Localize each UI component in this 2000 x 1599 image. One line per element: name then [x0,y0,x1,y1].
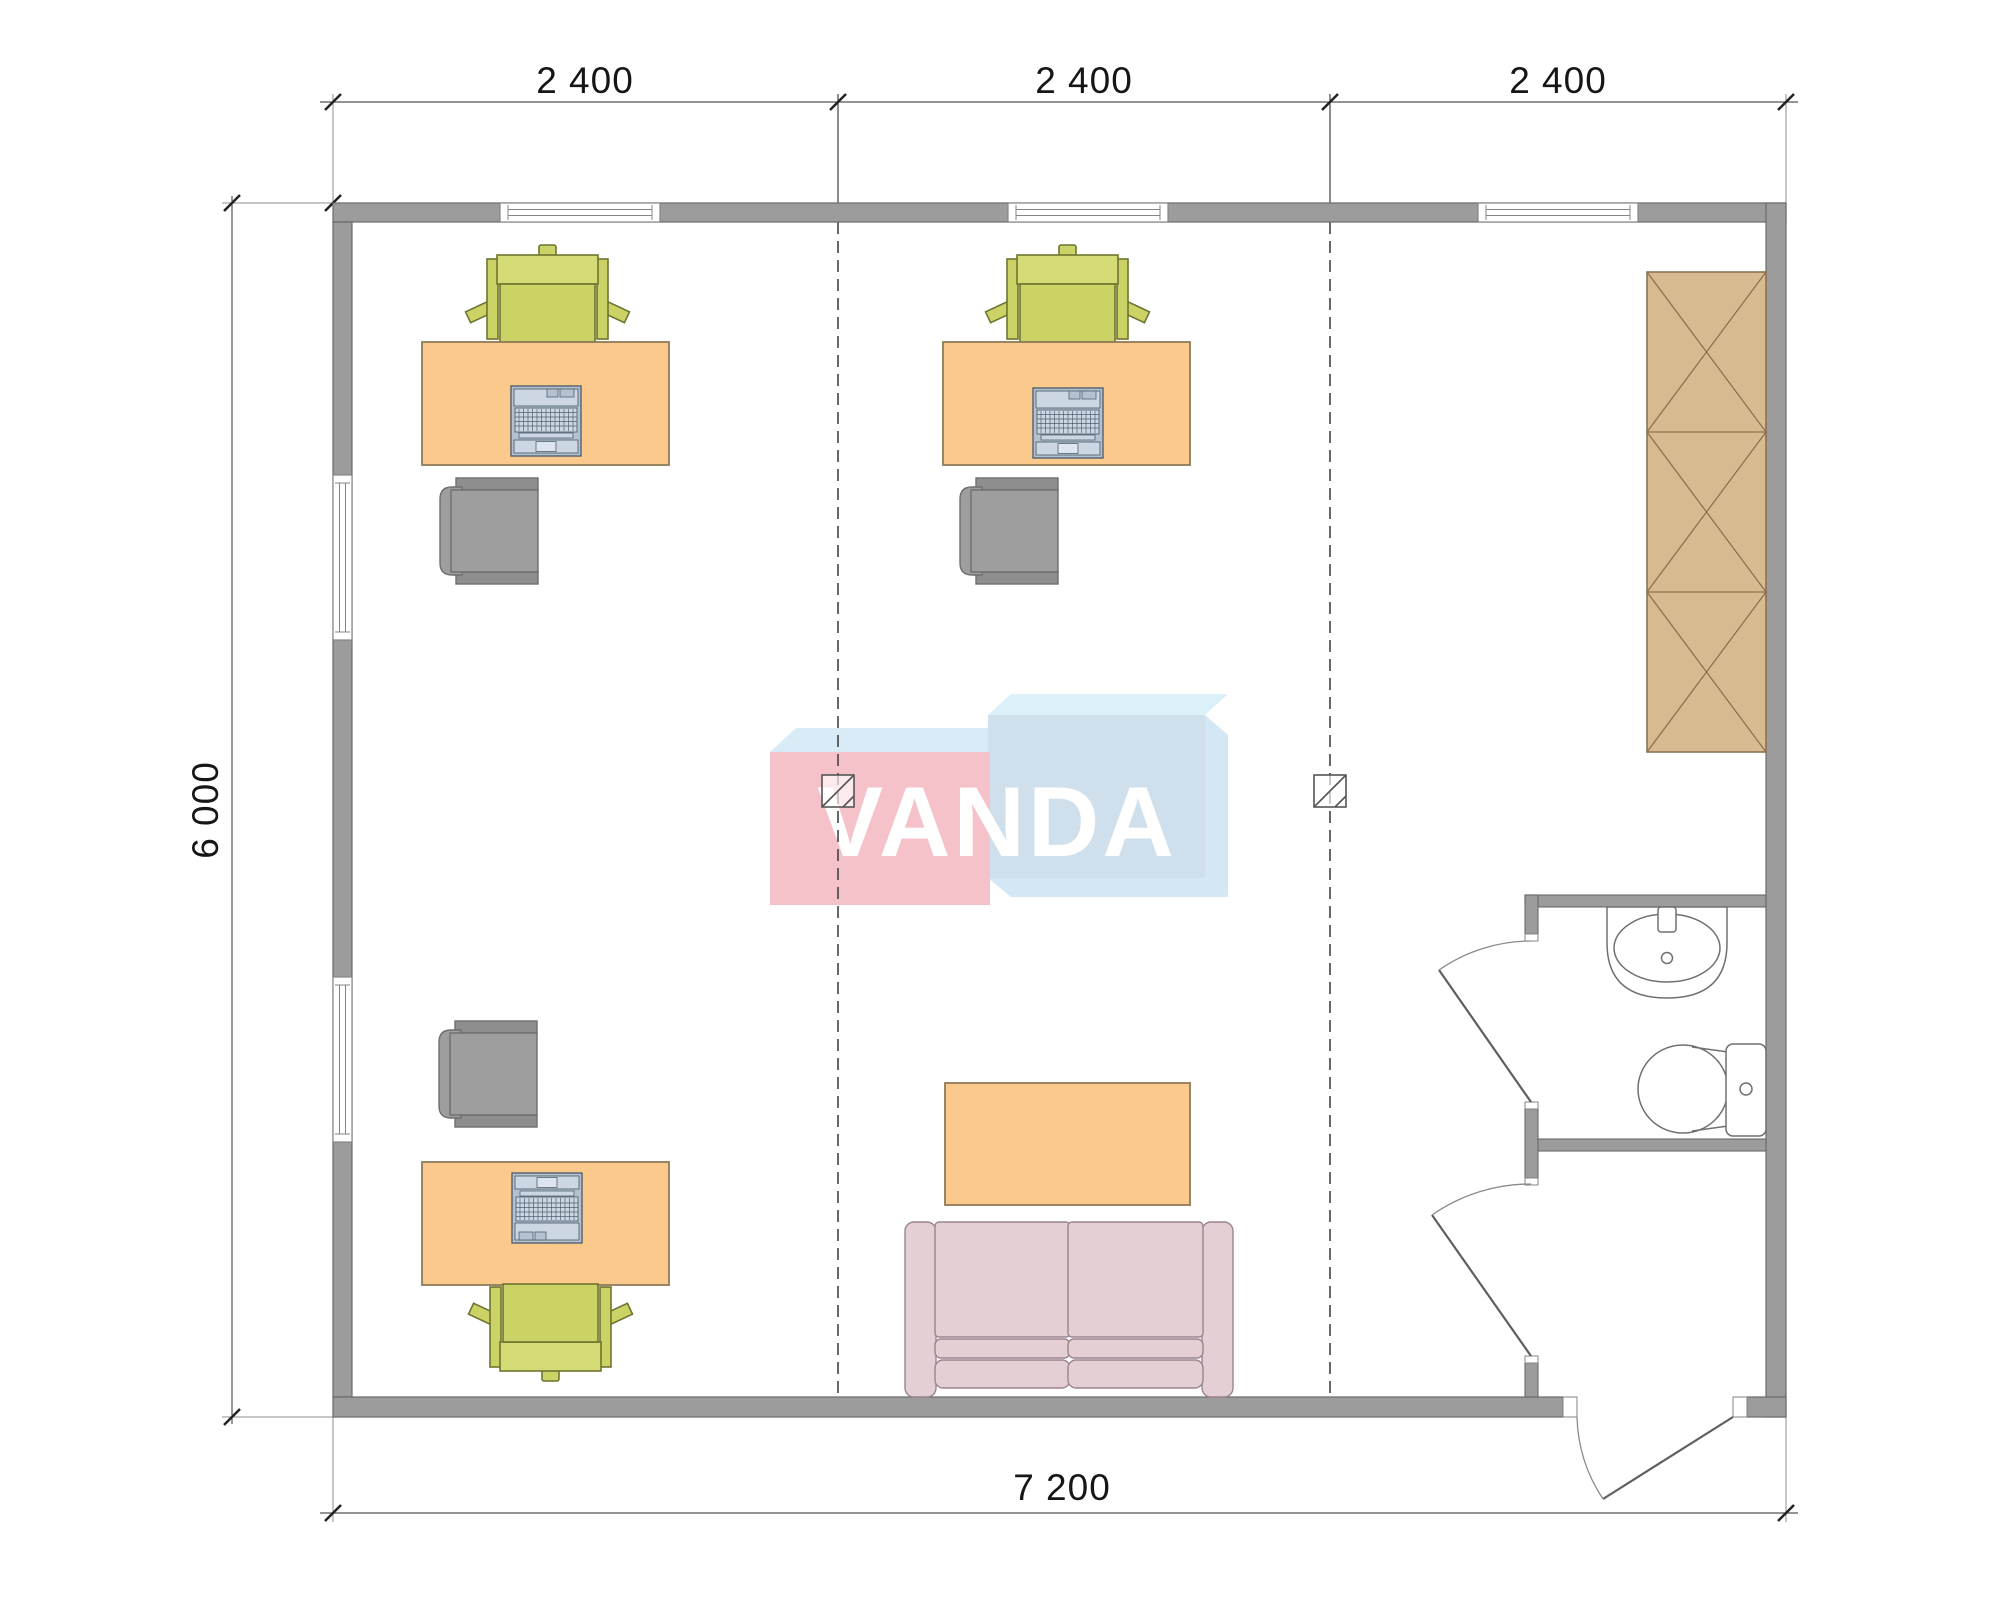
sink-faucet [1658,907,1676,932]
partition-segment [1525,1109,1538,1178]
task-chair-2 [986,245,1150,342]
sofa-back-cushion [935,1222,1070,1337]
door-leaf [1603,1417,1733,1499]
workstation-3 [422,1021,669,1381]
sofa [905,1222,1233,1397]
laptop-2 [1033,388,1103,458]
window-top-1 [500,203,660,222]
window-top-2 [1008,203,1168,222]
door-swing-arc [1577,1417,1603,1499]
partition-segment [1525,895,1538,934]
sofa-seat-cushion [1068,1360,1203,1388]
task-chair-1 [466,245,630,342]
window-left-2 [333,977,352,1142]
logo-box-top-face [770,728,1016,752]
floor-plan-page: VANDA 2 400 2 400 2 400 6 000 7 200 [0,0,2000,1599]
partition-segment [1525,1363,1538,1397]
window-top-3 [1478,203,1638,222]
sofa-seat-cushion [1068,1339,1203,1358]
sofa-armrest [905,1222,936,1397]
bathroom-wall-bottom [1538,1139,1766,1151]
sofa-armrest [1202,1222,1233,1397]
vestibule-door [1432,1184,1531,1356]
wall-bottom-right [1747,1397,1786,1417]
wardrobe [1647,272,1766,752]
dimension-label-left: 6 000 [185,761,226,859]
sink-drain [1662,953,1673,964]
dimension-label-top-3: 2 400 [1509,60,1607,101]
door-swing-arc [1439,941,1531,970]
visitor-chair-3 [439,1021,537,1127]
laptop-1 [511,386,581,456]
dimension-label-bottom: 7 200 [1013,1467,1111,1508]
window-left-1 [333,475,352,640]
visitor-chair-1 [440,478,538,584]
visitor-chair-2 [960,478,1058,584]
toilet-bowl [1638,1045,1728,1133]
entrance-door [1577,1417,1733,1499]
dimension-label-top-1: 2 400 [536,60,634,101]
wall-bottom-left [333,1397,1563,1417]
wall-right [1766,203,1786,1417]
workstation-1 [422,245,669,584]
sink [1607,907,1727,998]
workstation-2 [943,245,1190,584]
toilet [1638,1044,1766,1136]
logo-box-side-face [1205,715,1228,897]
logo-box-top-face [988,694,1228,715]
bathroom-door [1439,941,1531,1102]
bathroom-wall-top [1525,895,1766,907]
sofa-back-cushion [1068,1222,1203,1337]
door-leaf [1439,970,1531,1102]
door-swing-arc [1432,1184,1531,1215]
wall-left [333,222,352,1397]
logo-wordmark: VANDA [817,766,1177,877]
dimension-label-top-2: 2 400 [1035,60,1133,101]
laptop-3 [512,1173,582,1243]
toilet-flush-button [1740,1083,1752,1095]
sofa-seat-cushion [935,1339,1070,1358]
door-leaf [1432,1215,1531,1356]
floor-plan-drawing: VANDA 2 400 2 400 2 400 6 000 7 200 [0,0,2000,1599]
task-chair-3 [469,1284,633,1381]
sofa-seat-cushion [935,1360,1070,1388]
coffee-table [945,1083,1190,1205]
logo-box-side-face [988,878,1228,897]
